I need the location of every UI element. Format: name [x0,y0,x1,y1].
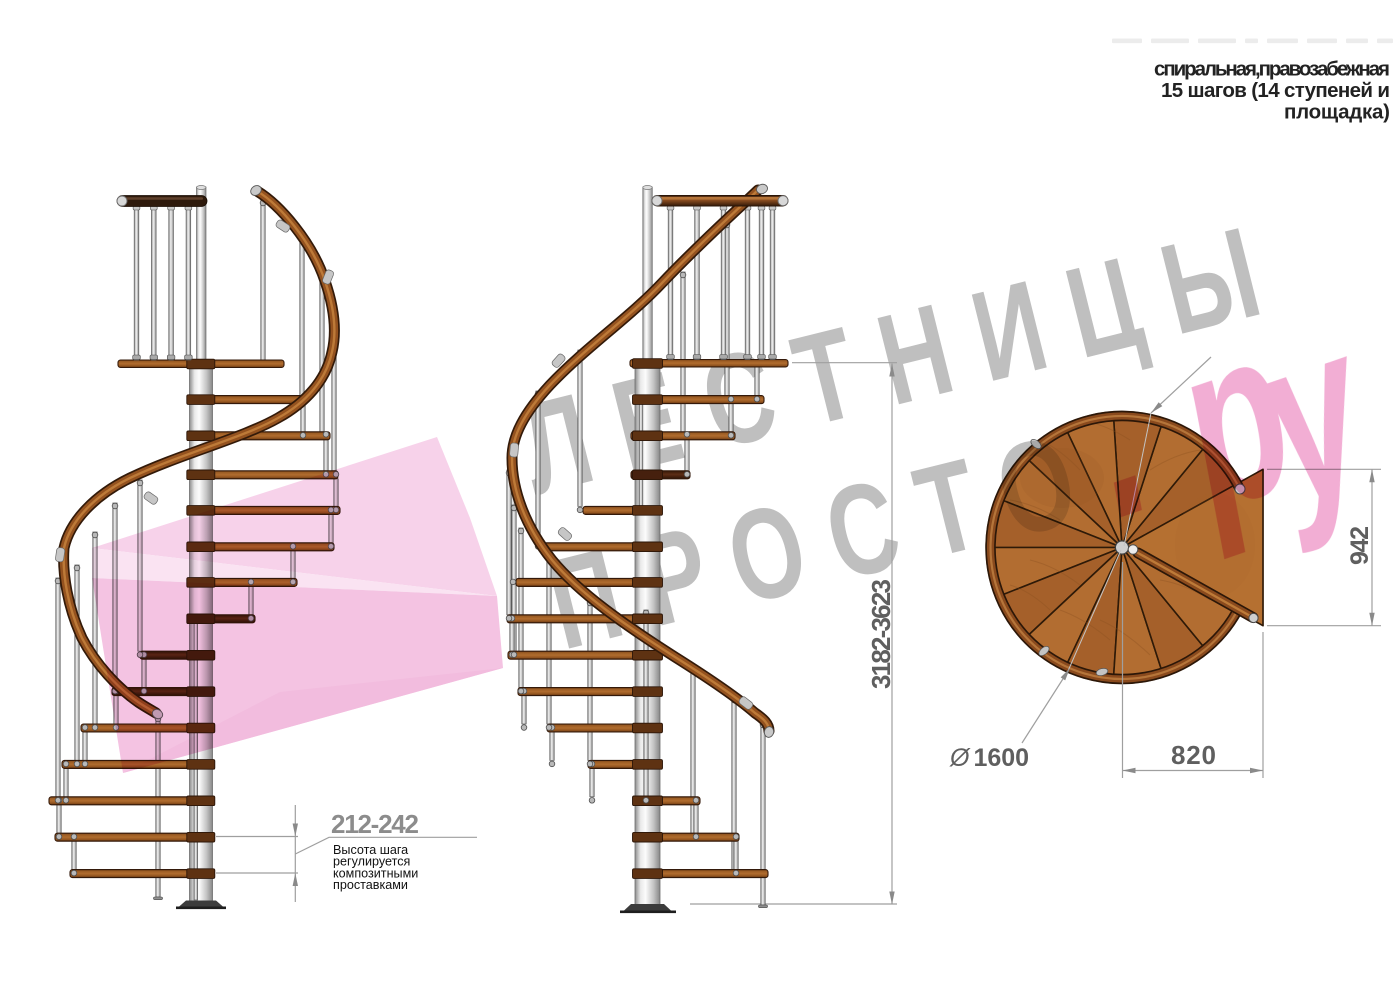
svg-text:проставками: проставками [333,878,408,892]
svg-text:820: 820 [1171,740,1216,770]
svg-text:3182-3623: 3182-3623 [866,579,896,689]
svg-text:Ø1600: Ø1600 [949,744,1029,772]
svg-text:212-242: 212-242 [331,809,419,839]
svg-text:15 шагов (14 ступеней и: 15 шагов (14 ступеней и [1161,79,1390,102]
svg-text:площадка): площадка) [1284,101,1390,124]
svg-text:спиральная,правозабежная: спиральная,правозабежная [1154,58,1390,81]
